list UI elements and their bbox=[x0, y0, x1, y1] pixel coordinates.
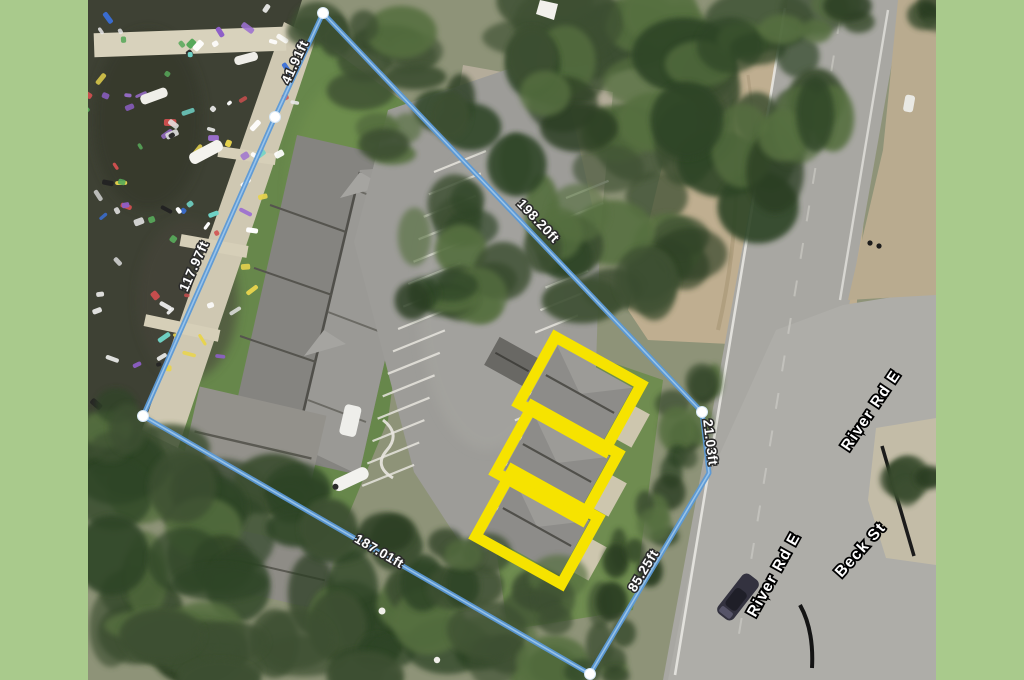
manhole-1 bbox=[379, 608, 386, 615]
satellite-photo: 41.91ft 198.20ft 117.97ft 21.03ft 85.25f… bbox=[88, 0, 936, 680]
parcel-map-screenshot: { "frame": { "color": "#a9ca8c" }, "map"… bbox=[0, 0, 1024, 680]
pedestrian-2 bbox=[876, 243, 881, 248]
parcel-vertex-right bbox=[697, 407, 708, 418]
parcel-vertex-bottom bbox=[585, 669, 596, 680]
pedestrian-1 bbox=[867, 240, 872, 245]
parcel-vertex-upperleft bbox=[270, 112, 281, 123]
manhole-2 bbox=[434, 657, 440, 663]
parcel-vertex-top bbox=[318, 8, 329, 19]
parcel-vertex-left bbox=[138, 411, 149, 422]
